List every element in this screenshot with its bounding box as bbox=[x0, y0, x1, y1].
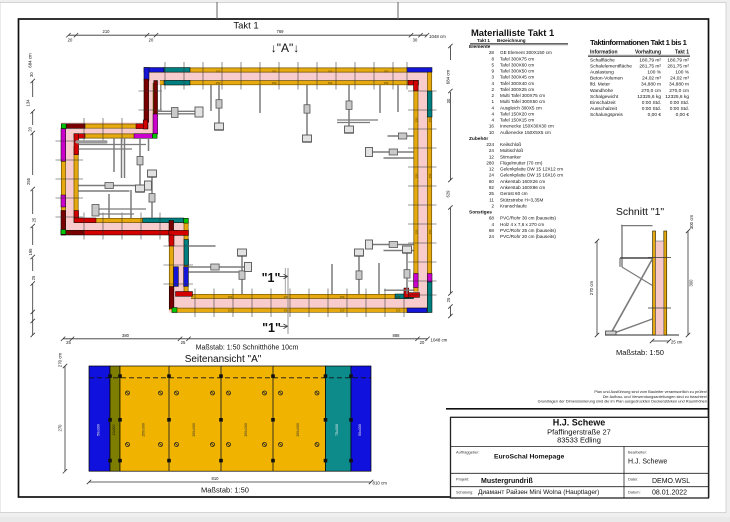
svg-text:4: 4 bbox=[491, 118, 494, 123]
svg-text:11: 11 bbox=[489, 197, 494, 202]
svg-text:195: 195 bbox=[28, 248, 33, 256]
svg-text:769: 769 bbox=[277, 29, 285, 34]
svg-text:8: 8 bbox=[491, 56, 494, 61]
svg-text:25 cm: 25 cm bbox=[671, 340, 683, 345]
svg-text:Beton-Volumen: Beton-Volumen bbox=[590, 76, 623, 82]
svg-text:150: 150 bbox=[228, 295, 233, 299]
svg-text:Holz 4 x 7,6 x 270 cm: Holz 4 x 7,6 x 270 cm bbox=[500, 222, 544, 227]
svg-text:0:00 Std.: 0:00 Std. bbox=[670, 100, 689, 106]
svg-text:3: 3 bbox=[491, 75, 494, 80]
svg-text:Tafel 300X25 cm: Tafel 300X25 cm bbox=[500, 87, 534, 92]
svg-text:24: 24 bbox=[489, 234, 495, 239]
svg-text:Innenecke 150X30X30 cm: Innenecke 150X30X30 cm bbox=[500, 124, 554, 129]
svg-text:150: 150 bbox=[396, 295, 401, 299]
svg-text:150: 150 bbox=[272, 69, 277, 73]
svg-text:5: 5 bbox=[491, 62, 494, 67]
svg-text:150: 150 bbox=[272, 81, 277, 85]
svg-text:Seitenansicht "A": Seitenansicht "A" bbox=[185, 354, 262, 365]
svg-text:0,00 €: 0,00 € bbox=[676, 112, 690, 118]
svg-text:83533 Edling: 83533 Edling bbox=[557, 436, 601, 445]
svg-text:50x300: 50x300 bbox=[358, 424, 362, 436]
svg-text:Elemente: Elemente bbox=[469, 44, 491, 50]
svg-text:4: 4 bbox=[491, 105, 494, 110]
svg-text:Maßstab: 1:50: Maßstab: 1:50 bbox=[616, 348, 664, 357]
svg-text:Multischloß: Multischloß bbox=[500, 148, 523, 153]
svg-text:24: 24 bbox=[489, 173, 495, 178]
svg-text:270 cm: 270 cm bbox=[58, 352, 63, 367]
svg-text:2: 2 bbox=[491, 87, 494, 92]
svg-text:Schalelementfläche: Schalelementfläche bbox=[590, 64, 632, 70]
svg-text:24: 24 bbox=[489, 148, 495, 153]
svg-text:150x300: 150x300 bbox=[192, 423, 196, 437]
svg-text:150x300: 150x300 bbox=[296, 423, 300, 437]
svg-text:"1": "1" bbox=[262, 271, 281, 285]
svg-text:150: 150 bbox=[384, 69, 389, 73]
svg-text:H.J. Schewe: H.J. Schewe bbox=[553, 418, 606, 428]
svg-text:Ankerstab 160X86 cm: Ankerstab 160X86 cm bbox=[500, 185, 545, 190]
svg-text:92: 92 bbox=[489, 185, 495, 190]
svg-text:Zubehör: Zubehör bbox=[469, 136, 488, 142]
svg-text:Datum:: Datum: bbox=[628, 490, 641, 495]
svg-text:380: 380 bbox=[122, 333, 130, 338]
svg-text:68: 68 bbox=[489, 228, 495, 233]
svg-text:210: 210 bbox=[103, 29, 111, 34]
svg-text:H.J. Schewe: H.J. Schewe bbox=[628, 459, 667, 466]
svg-text:150: 150 bbox=[384, 81, 389, 85]
svg-text:150x300: 150x300 bbox=[244, 423, 248, 437]
svg-text:Einschalzeit: Einschalzeit bbox=[590, 100, 616, 106]
svg-text:25: 25 bbox=[489, 191, 495, 196]
svg-text:134: 134 bbox=[26, 99, 31, 107]
svg-text:Stirnanker: Stirnanker bbox=[500, 154, 521, 159]
svg-text:150: 150 bbox=[340, 295, 345, 299]
svg-text:34,880 m: 34,880 m bbox=[669, 82, 689, 88]
svg-text:Schalungspreis: Schalungspreis bbox=[590, 112, 623, 118]
svg-text:Tafel 300X75 cm: Tafel 300X75 cm bbox=[500, 56, 534, 61]
svg-text:100 %: 100 % bbox=[675, 70, 689, 76]
svg-text:Maßstab: 1:50: Maßstab: 1:50 bbox=[201, 486, 249, 495]
svg-text:Vorhaltung: Vorhaltung bbox=[635, 50, 661, 56]
svg-text:2: 2 bbox=[491, 93, 494, 98]
svg-text:281,75 m²: 281,75 m² bbox=[667, 64, 689, 70]
svg-text:0,00 €: 0,00 € bbox=[648, 112, 662, 118]
svg-text:Schalgewicht: Schalgewicht bbox=[590, 94, 619, 100]
svg-text:20: 20 bbox=[420, 340, 425, 345]
svg-text:12: 12 bbox=[489, 154, 495, 159]
svg-text:Kranschlaufe: Kranschlaufe bbox=[500, 203, 527, 208]
svg-text:Datei:: Datei: bbox=[628, 477, 638, 482]
svg-text:34,880 m: 34,880 m bbox=[641, 82, 661, 88]
svg-text:Tafel 300X45 cm: Tafel 300X45 cm bbox=[500, 75, 534, 80]
svg-text:Gelenkplatte DW 15 12X12 cm: Gelenkplatte DW 15 12X12 cm bbox=[500, 167, 563, 172]
svg-text:150: 150 bbox=[415, 173, 419, 178]
svg-text:Auftraggeber:: Auftraggeber: bbox=[456, 449, 480, 454]
svg-text:Stützstrebe H=3,35M: Stützstrebe H=3,35M bbox=[500, 197, 543, 202]
svg-text:24,02 m³: 24,02 m³ bbox=[642, 76, 661, 82]
svg-text:270: 270 bbox=[58, 424, 63, 432]
svg-text:1048 cm: 1048 cm bbox=[431, 338, 448, 343]
svg-text:25: 25 bbox=[446, 297, 451, 302]
svg-text:Grundlagen der Dimensionierung: Grundlagen der Dimensionierung sind die … bbox=[538, 399, 707, 404]
svg-text:150: 150 bbox=[216, 69, 221, 73]
svg-text:GE Element 300X150 cm: GE Element 300X150 cm bbox=[500, 50, 552, 55]
svg-text:150x300: 150x300 bbox=[142, 423, 146, 437]
svg-text:150: 150 bbox=[428, 173, 432, 178]
svg-text:16: 16 bbox=[489, 124, 495, 129]
svg-text:68: 68 bbox=[489, 216, 495, 221]
svg-text:Bezeichnung: Bezeichnung bbox=[497, 38, 526, 43]
svg-text:"1": "1" bbox=[262, 321, 281, 335]
svg-text:Materialliste Takt 1: Materialliste Takt 1 bbox=[471, 27, 554, 38]
svg-text:629: 629 bbox=[446, 190, 451, 198]
svg-text:50x300: 50x300 bbox=[97, 424, 101, 436]
svg-text:24,02 m³: 24,02 m³ bbox=[670, 76, 689, 82]
svg-text:150: 150 bbox=[428, 229, 432, 234]
svg-text:Ausgleich 300X5 cm: Ausgleich 300X5 cm bbox=[500, 105, 542, 110]
svg-text:↓"A"↓: ↓"A"↓ bbox=[271, 41, 300, 55]
svg-text:Multi Tafel 300X50 cm: Multi Tafel 300X50 cm bbox=[500, 99, 545, 104]
svg-text:12325,6 kg: 12325,6 kg bbox=[665, 94, 689, 100]
svg-text:150: 150 bbox=[428, 117, 432, 122]
svg-text:684 cm: 684 cm bbox=[446, 69, 451, 84]
svg-text:0:00 Std.: 0:00 Std. bbox=[642, 100, 661, 106]
svg-text:Außenecke 150X5X5 cm: Außenecke 150X5X5 cm bbox=[500, 130, 551, 135]
svg-text:180,79 m²: 180,79 m² bbox=[639, 58, 661, 64]
svg-text:20: 20 bbox=[149, 38, 154, 43]
svg-text:Ankerstab 160X26 cm: Ankerstab 160X26 cm bbox=[500, 179, 545, 184]
svg-text:300: 300 bbox=[689, 279, 694, 287]
svg-text:255: 255 bbox=[26, 177, 31, 185]
svg-text:4: 4 bbox=[491, 222, 494, 227]
svg-text:Ausschalzeit: Ausschalzeit bbox=[590, 106, 618, 112]
svg-text:Taktinformationen Takt 1 bis: Taktinformationen Takt 1 bis 1 bbox=[590, 38, 688, 47]
svg-text:1: 1 bbox=[491, 99, 494, 104]
svg-text:PVC/Rohr 30 cm (bauseits): PVC/Rohr 30 cm (bauseits) bbox=[500, 216, 556, 221]
svg-text:28: 28 bbox=[489, 50, 495, 55]
svg-text:Mustergrundriß: Mustergrundriß bbox=[481, 478, 533, 485]
svg-text:Tafel 300X50 cm: Tafel 300X50 cm bbox=[500, 69, 534, 74]
svg-text:150: 150 bbox=[396, 309, 401, 313]
svg-text:180,79 m²: 180,79 m² bbox=[667, 58, 689, 64]
svg-text:Takt 1: Takt 1 bbox=[477, 38, 490, 43]
svg-text:25: 25 bbox=[31, 275, 36, 280]
svg-text:Gelenkplatte DW 15 16X16 cm: Gelenkplatte DW 15 16X16 cm bbox=[500, 173, 563, 178]
svg-text:Multi Tafel 300X75 cm: Multi Tafel 300X75 cm bbox=[500, 93, 545, 98]
svg-text:20: 20 bbox=[68, 38, 73, 43]
svg-text:150: 150 bbox=[415, 229, 419, 234]
svg-text:Tafel 150X20 cm: Tafel 150X20 cm bbox=[500, 111, 534, 116]
svg-text:Keilschloß: Keilschloß bbox=[500, 142, 521, 147]
svg-text:PVC/Rohr 20 cm (bauseits): PVC/Rohr 20 cm (bauseits) bbox=[500, 234, 556, 239]
svg-text:08.01.2022: 08.01.2022 bbox=[652, 490, 687, 497]
svg-text:Maßstab: 1:50 Schnitthöhe 10: Maßstab: 1:50 Schnitthöhe 10cm bbox=[196, 345, 299, 352]
svg-text:Tafel 300X60 cm: Tafel 300X60 cm bbox=[500, 62, 534, 67]
svg-text:lfd. Meter: lfd. Meter bbox=[590, 82, 610, 88]
svg-text:60: 60 bbox=[489, 179, 495, 184]
svg-text:30: 30 bbox=[446, 98, 451, 103]
svg-text:Schalung:: Schalung: bbox=[456, 490, 473, 495]
svg-text:25: 25 bbox=[181, 340, 186, 345]
svg-text:888: 888 bbox=[393, 333, 401, 338]
svg-text:10x300: 10x300 bbox=[112, 424, 116, 435]
svg-text:270,0 cm: 270,0 cm bbox=[669, 88, 689, 94]
svg-text:75x300: 75x300 bbox=[335, 424, 339, 436]
svg-text:30: 30 bbox=[29, 72, 34, 77]
svg-text:810: 810 bbox=[212, 476, 220, 481]
svg-text:2: 2 bbox=[491, 203, 494, 208]
svg-text:30: 30 bbox=[413, 38, 418, 43]
svg-text:270 cm: 270 cm bbox=[589, 280, 594, 295]
svg-text:Tafel 300X40 cm: Tafel 300X40 cm bbox=[500, 81, 534, 86]
svg-text:280: 280 bbox=[486, 160, 494, 165]
svg-text:12: 12 bbox=[489, 167, 495, 172]
svg-text:Sonstiges: Sonstiges bbox=[469, 210, 492, 216]
svg-text:810 cm: 810 cm bbox=[373, 480, 388, 485]
svg-text:PVC/Rohr 25 cm (bauseits): PVC/Rohr 25 cm (bauseits) bbox=[500, 228, 556, 233]
svg-text:Диамант Райзен Mini Wolna (Hau: Диамант Райзен Mini Wolna (Hauptlager) bbox=[478, 488, 599, 496]
svg-text:150: 150 bbox=[328, 81, 333, 85]
svg-text:684 cm: 684 cm bbox=[28, 53, 33, 68]
svg-text:9: 9 bbox=[491, 69, 494, 74]
svg-text:100 %: 100 % bbox=[647, 70, 661, 76]
svg-text:12325,6 kg: 12325,6 kg bbox=[637, 94, 661, 100]
svg-text:224: 224 bbox=[486, 142, 494, 147]
svg-text:Information: Information bbox=[590, 50, 618, 56]
svg-text:DEMO.WSL: DEMO.WSL bbox=[652, 478, 690, 485]
svg-text:150: 150 bbox=[415, 117, 419, 122]
svg-text:Schalfläche: Schalfläche bbox=[590, 58, 615, 64]
svg-text:EuroSchal Homepage: EuroSchal Homepage bbox=[494, 454, 564, 461]
svg-text:Takt 1: Takt 1 bbox=[675, 50, 689, 56]
svg-text:Gerüst 60 cm: Gerüst 60 cm bbox=[500, 191, 528, 196]
svg-text:0:00 Std.: 0:00 Std. bbox=[642, 106, 661, 112]
svg-text:Flügelmutter (70 cm): Flügelmutter (70 cm) bbox=[500, 160, 543, 165]
svg-text:Auslastung: Auslastung bbox=[590, 70, 614, 76]
svg-text:0:00 Std.: 0:00 Std. bbox=[670, 106, 689, 112]
svg-text:1048 cm: 1048 cm bbox=[429, 34, 446, 39]
svg-text:Takt 1: Takt 1 bbox=[233, 21, 258, 32]
svg-text:Projekt:: Projekt: bbox=[456, 477, 469, 482]
svg-text:4: 4 bbox=[491, 111, 494, 116]
svg-text:Wandhöhe: Wandhöhe bbox=[590, 88, 613, 94]
svg-text:25: 25 bbox=[66, 340, 71, 345]
svg-text:270,0 cm: 270,0 cm bbox=[641, 88, 661, 94]
svg-text:Bearbeiter:: Bearbeiter: bbox=[628, 449, 647, 454]
svg-text:281,75 m²: 281,75 m² bbox=[639, 64, 661, 70]
svg-text:20: 20 bbox=[27, 126, 32, 131]
svg-text:150: 150 bbox=[328, 69, 333, 73]
svg-text:150: 150 bbox=[216, 81, 221, 85]
svg-text:150: 150 bbox=[228, 309, 233, 313]
svg-text:Schnitt "1": Schnitt "1" bbox=[616, 206, 665, 218]
svg-text:25: 25 bbox=[32, 217, 37, 222]
svg-text:4: 4 bbox=[491, 81, 494, 86]
svg-text:Tafel 150X15 cm: Tafel 150X15 cm bbox=[500, 118, 534, 123]
svg-text:300 cm: 300 cm bbox=[689, 214, 694, 229]
svg-text:10: 10 bbox=[489, 130, 495, 135]
svg-text:150: 150 bbox=[340, 309, 345, 313]
